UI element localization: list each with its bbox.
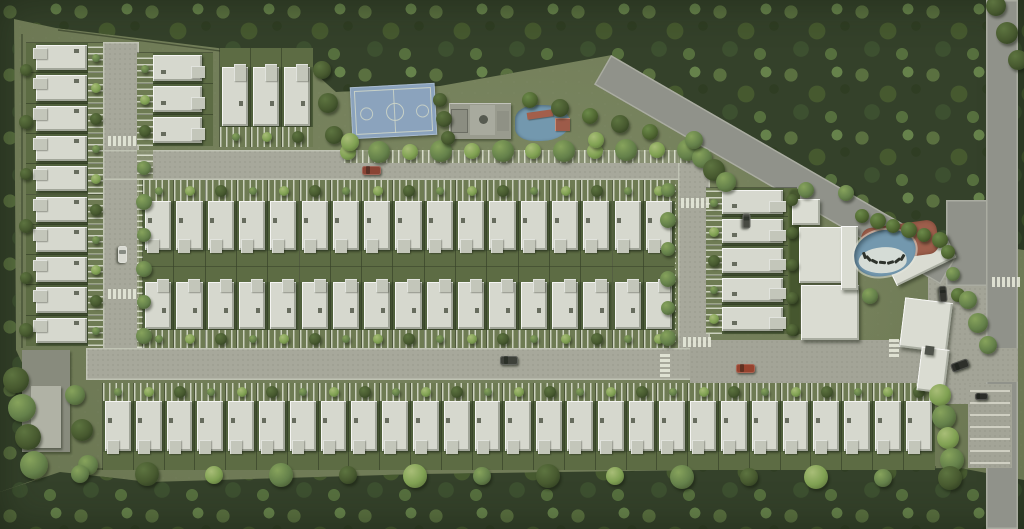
car-windshield [954,362,961,370]
white-van-left-road [118,246,127,263]
car-windshield [118,249,125,253]
car-windshield [939,289,946,293]
car-windshield [977,393,980,399]
cars-layer [0,0,1024,529]
red-car-top-road [362,166,381,175]
parked-car-stalls [975,393,988,400]
car-windshield [740,364,745,371]
parked-car-east-drive [742,214,750,229]
car-windshield [366,166,371,173]
dark-car-gate [950,358,970,373]
dark-car-bottom-road [500,356,518,365]
masterplan-aerial-scene [0,0,1024,529]
car-windshield [743,217,749,221]
red-car-plaza [736,364,755,373]
car-windshield [504,356,508,363]
parked-car-clubhouse [938,286,947,303]
